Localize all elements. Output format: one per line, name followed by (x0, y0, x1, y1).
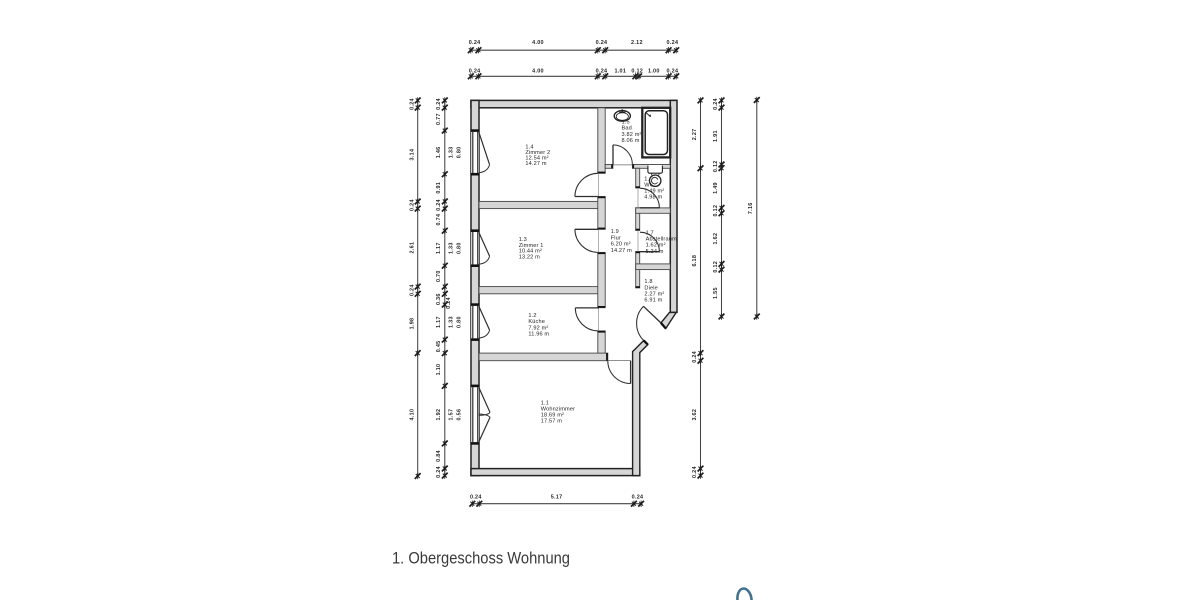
svg-text:0.24: 0.24 (667, 40, 679, 46)
svg-text:Abstellraum: Abstellraum (646, 237, 677, 243)
svg-text:0.24: 0.24 (469, 40, 481, 46)
svg-text:1.62: 1.62 (713, 233, 719, 245)
svg-text:Küche: Küche (528, 319, 545, 325)
svg-text:0.24: 0.24 (692, 351, 698, 363)
svg-text:2.27 m²: 2.27 m² (644, 291, 664, 297)
svg-text:11.96 m: 11.96 m (528, 332, 549, 338)
svg-text:4.98 m: 4.98 m (644, 194, 662, 200)
svg-text:0.56: 0.56 (457, 409, 463, 421)
svg-text:1.33: 1.33 (449, 242, 455, 254)
svg-text:0.36: 0.36 (436, 293, 442, 305)
svg-text:1.10: 1.10 (436, 364, 442, 376)
svg-text:14.27 m: 14.27 m (525, 161, 546, 167)
svg-text:5.17: 5.17 (551, 494, 563, 500)
svg-text:17.57 m: 17.57 m (541, 418, 562, 424)
svg-text:Flur: Flur (611, 235, 621, 241)
svg-text:0.24: 0.24 (436, 466, 442, 478)
svg-text:0.24: 0.24 (470, 494, 482, 500)
svg-text:6.91 m: 6.91 m (644, 298, 662, 304)
svg-text:0.24: 0.24 (446, 297, 452, 309)
svg-text:1.92: 1.92 (436, 409, 442, 421)
svg-text:0.24: 0.24 (469, 69, 481, 75)
svg-text:1.8: 1.8 (644, 279, 652, 285)
svg-text:0.24: 0.24 (667, 69, 679, 75)
svg-text:1.17: 1.17 (436, 316, 442, 328)
svg-text:0.24: 0.24 (409, 199, 415, 211)
svg-text:1.17: 1.17 (436, 242, 442, 254)
svg-text:13.22 m: 13.22 m (519, 255, 540, 261)
svg-text:0.80: 0.80 (457, 242, 463, 254)
svg-text:5.24 m: 5.24 m (646, 249, 664, 255)
svg-text:7.16: 7.16 (748, 202, 754, 214)
svg-text:1.33: 1.33 (449, 147, 455, 159)
svg-text:0.24: 0.24 (692, 466, 698, 478)
svg-text:1.46: 1.46 (436, 147, 442, 159)
svg-text:1. Obergeschoss Wohnung: 1. Obergeschoss Wohnung (392, 548, 570, 567)
svg-text:0.24: 0.24 (409, 284, 415, 296)
svg-text:0.24: 0.24 (713, 98, 719, 110)
svg-text:0.12: 0.12 (713, 160, 719, 172)
svg-text:0.24: 0.24 (436, 199, 442, 211)
svg-text:1.98: 1.98 (409, 318, 415, 330)
svg-text:7.92 m²: 7.92 m² (528, 325, 548, 331)
svg-text:8.06 m: 8.06 m (622, 138, 640, 144)
svg-text:1.55: 1.55 (713, 287, 719, 299)
svg-text:6.18: 6.18 (692, 255, 698, 267)
svg-text:0.12: 0.12 (631, 69, 643, 75)
svg-text:1.01: 1.01 (614, 69, 626, 75)
svg-text:1.2: 1.2 (528, 313, 536, 319)
svg-text:0.91: 0.91 (436, 182, 442, 194)
svg-text:1.49: 1.49 (713, 182, 719, 194)
svg-text:1.91: 1.91 (713, 130, 719, 142)
svg-text:0.80: 0.80 (457, 147, 463, 159)
svg-text:0.74: 0.74 (436, 214, 442, 226)
svg-text:1.62 m²: 1.62 m² (646, 243, 666, 249)
svg-text:3.82 m²: 3.82 m² (622, 132, 642, 138)
svg-text:3.14: 3.14 (409, 149, 415, 161)
svg-text:0.12: 0.12 (713, 261, 719, 273)
svg-text:0.24: 0.24 (632, 494, 644, 500)
svg-text:0.24: 0.24 (409, 98, 415, 110)
svg-text:0.45: 0.45 (436, 341, 442, 353)
svg-text:0.84: 0.84 (436, 450, 442, 462)
svg-text:2.27: 2.27 (692, 129, 698, 141)
svg-text:2.61: 2.61 (409, 242, 415, 254)
svg-text:4.10: 4.10 (409, 409, 415, 421)
svg-text:0.24: 0.24 (596, 40, 608, 46)
svg-text:1.00: 1.00 (648, 69, 660, 75)
svg-text:1.7: 1.7 (646, 230, 654, 236)
svg-text:0.77: 0.77 (436, 113, 442, 125)
svg-text:2.12: 2.12 (631, 40, 643, 46)
svg-text:14.27 m: 14.27 m (611, 248, 632, 254)
svg-text:4.00: 4.00 (532, 69, 544, 75)
svg-text:0.24: 0.24 (436, 98, 442, 110)
svg-text:0.24: 0.24 (596, 69, 608, 75)
svg-text:0.12: 0.12 (713, 205, 719, 217)
svg-text:4.00: 4.00 (532, 40, 544, 46)
svg-text:6.20 m²: 6.20 m² (611, 242, 631, 248)
svg-text:1.33: 1.33 (449, 316, 455, 328)
svg-text:1.57: 1.57 (449, 409, 455, 421)
svg-text:0.70: 0.70 (436, 270, 442, 282)
svg-text:Diele: Diele (644, 285, 658, 291)
svg-text:1.9: 1.9 (611, 229, 619, 235)
svg-text:0.80: 0.80 (457, 316, 463, 328)
svg-text:3.62: 3.62 (692, 409, 698, 421)
svg-text:Bad: Bad (622, 126, 632, 132)
